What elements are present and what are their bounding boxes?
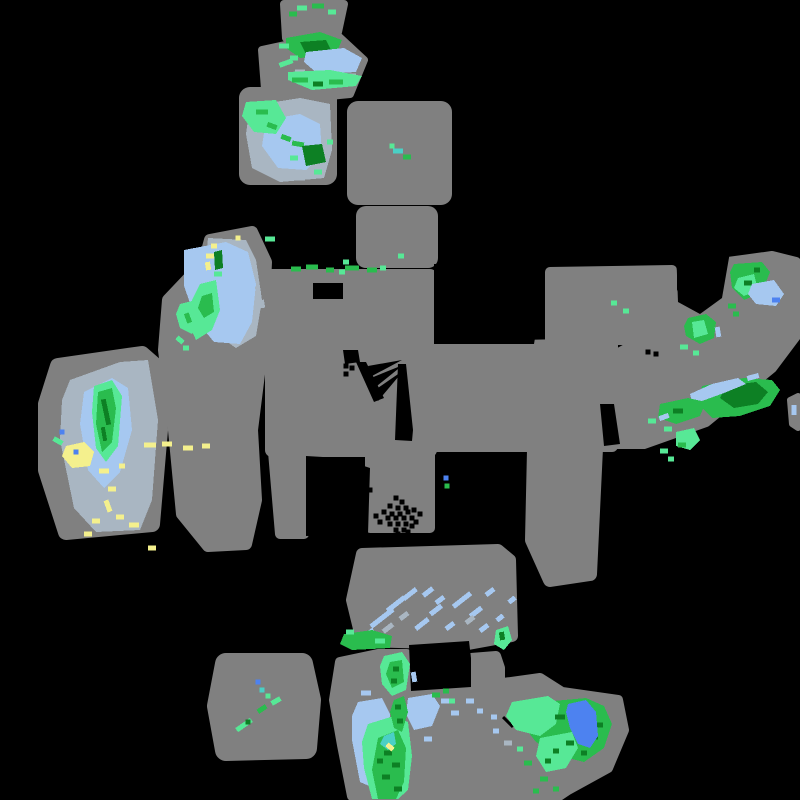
coverage-bc-upper (352, 550, 512, 644)
coverage-n-square-2 (366, 216, 428, 258)
coverage-center-sw (272, 440, 304, 534)
radar-composite-viewport (0, 0, 800, 800)
coverage-center-e (430, 344, 612, 446)
radar-mosaic-map (0, 0, 800, 800)
coverage-finger (532, 448, 596, 580)
